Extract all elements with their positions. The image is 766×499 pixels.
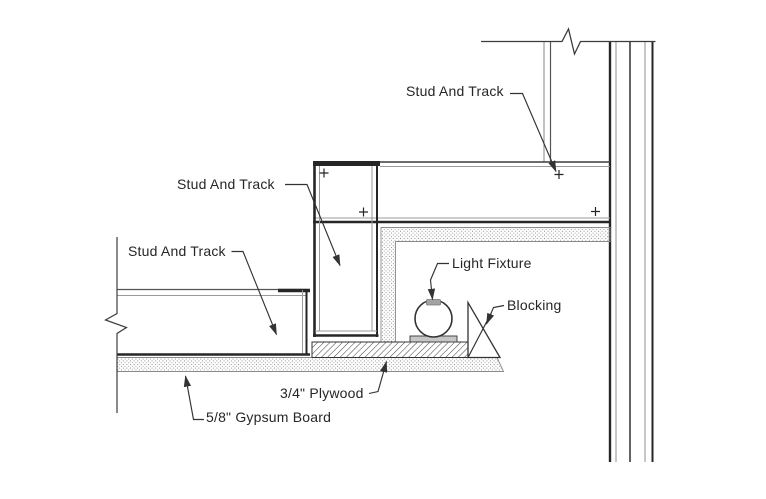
stud-and-track-label-middle: Stud And Track xyxy=(177,177,275,191)
left-cut-line xyxy=(106,237,127,413)
soffit-frame-upper xyxy=(313,162,610,222)
gypsum-board-label: 5/8" Gypsum Board xyxy=(206,410,331,424)
leader-stud-track-middle xyxy=(285,185,340,266)
cove-stud-box xyxy=(313,162,379,338)
stud-and-track-label-left: Stud And Track xyxy=(128,244,226,258)
drawing-linework xyxy=(0,0,766,499)
gypsum-board-soffit xyxy=(117,358,504,372)
plywood-shelf xyxy=(312,342,468,358)
stud-and-track-label-upper: Stud And Track xyxy=(406,84,504,98)
blocking-label: Blocking xyxy=(507,298,562,312)
leader-stud-track-upper xyxy=(510,94,556,172)
leader-blocking xyxy=(487,306,505,325)
blocking-symbol xyxy=(468,303,500,358)
leader-gypsum xyxy=(186,376,205,420)
fastener-marks xyxy=(320,169,601,217)
plywood-label: 3/4" Plywood xyxy=(280,386,364,400)
light-fixture-label: Light Fixture xyxy=(452,256,532,270)
wall-section xyxy=(610,42,653,462)
leader-light-fixture xyxy=(431,264,450,300)
construction-detail-drawing: Stud And Track Stud And Track Stud And T… xyxy=(0,0,766,499)
upper-stud-track xyxy=(544,42,551,162)
light-fixture xyxy=(410,300,457,343)
leader-stud-track-left xyxy=(232,252,277,335)
